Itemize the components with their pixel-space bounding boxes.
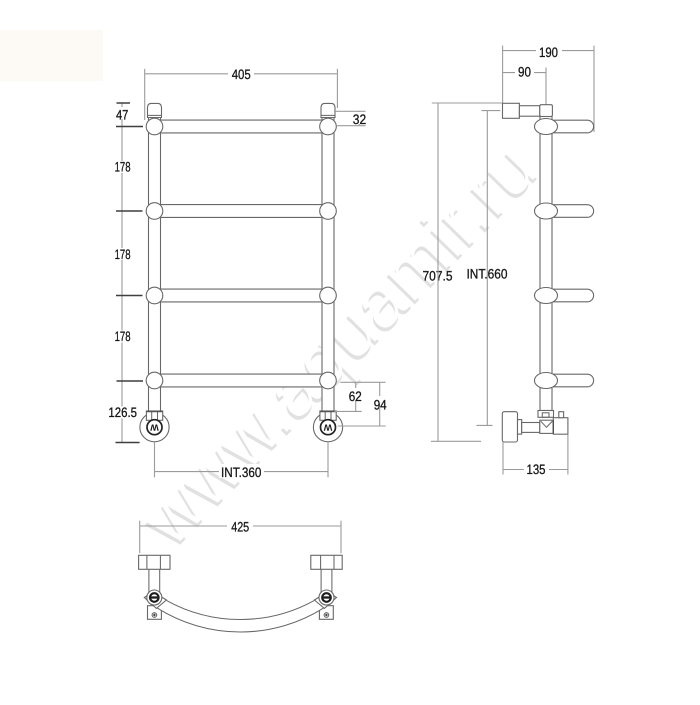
svg-text:178: 178 <box>115 329 131 344</box>
svg-text:W: W <box>150 422 159 432</box>
svg-text:178: 178 <box>115 247 131 262</box>
svg-text:INT.360: INT.360 <box>221 465 262 480</box>
svg-text:47: 47 <box>116 108 129 123</box>
svg-text:W: W <box>323 422 332 432</box>
svg-text:190: 190 <box>539 45 558 60</box>
svg-text:90: 90 <box>518 65 531 80</box>
svg-text:425: 425 <box>231 519 249 534</box>
svg-text:62: 62 <box>349 389 362 404</box>
svg-text:135: 135 <box>527 462 546 477</box>
svg-text:94: 94 <box>374 397 387 412</box>
svg-text:178: 178 <box>115 160 131 175</box>
svg-text:405: 405 <box>232 67 251 82</box>
svg-text:32: 32 <box>353 112 366 127</box>
svg-text:126.5: 126.5 <box>108 405 137 420</box>
